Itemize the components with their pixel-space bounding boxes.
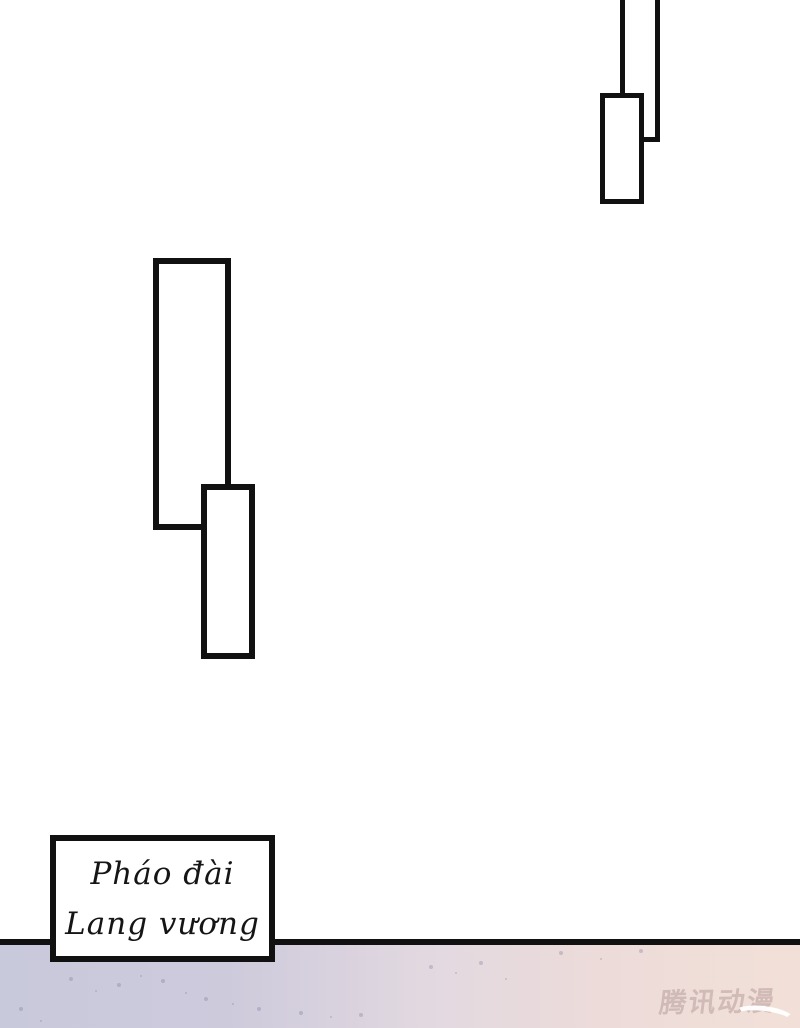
comic-page: Pháo đài Lang vương 腾讯动漫 <box>0 0 800 1028</box>
location-caption-box: Pháo đài Lang vương <box>50 835 275 962</box>
caption-line-2: Lang vương <box>65 900 260 948</box>
panel-tower-left-small <box>201 484 255 659</box>
speckle-texture <box>0 0 2 2</box>
panel-tower-top-right-small <box>600 93 644 204</box>
caption-line-1: Pháo đài <box>90 850 234 898</box>
